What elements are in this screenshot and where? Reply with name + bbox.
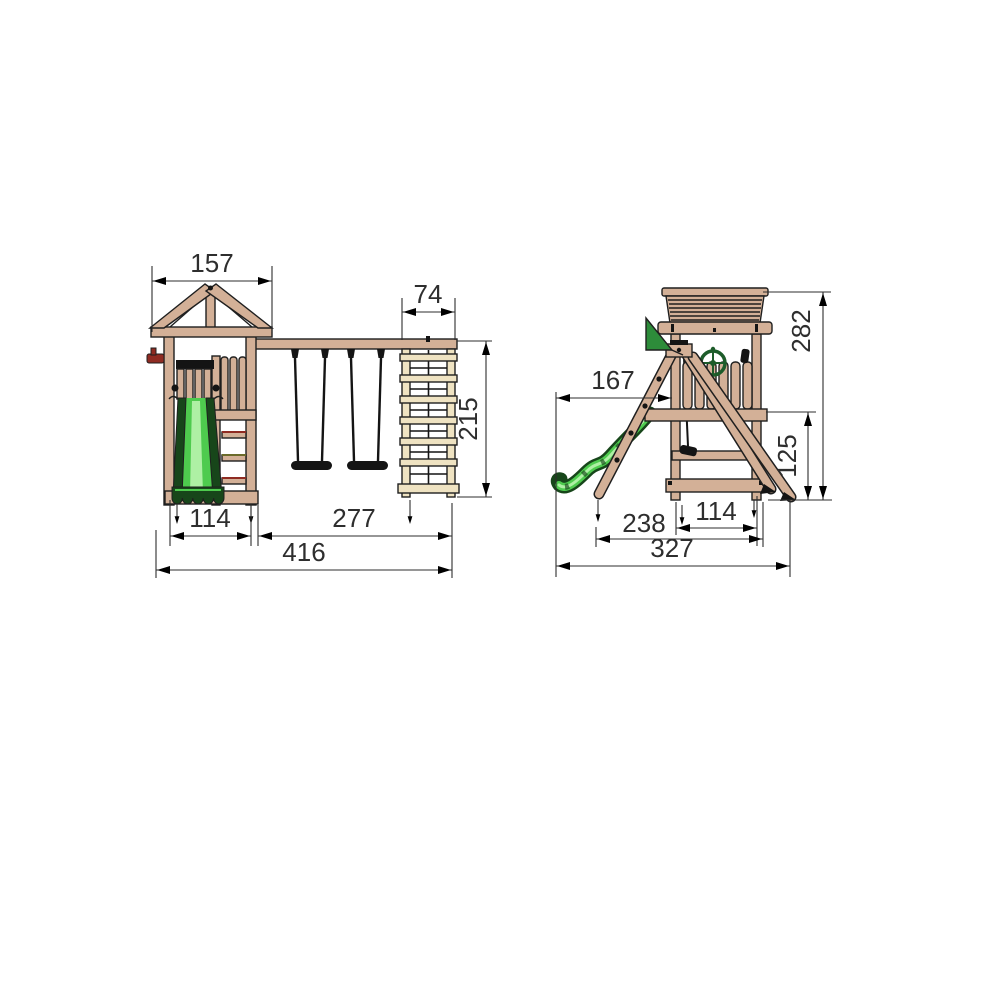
- tower-post-left: [164, 336, 174, 505]
- dim-label: 282: [786, 309, 816, 352]
- climber-base-board: [398, 484, 459, 493]
- dim-label: 167: [591, 365, 634, 395]
- swing-seat: [347, 461, 388, 470]
- dim-label: 327: [650, 533, 693, 563]
- roof-eaves-board: [151, 327, 272, 337]
- dim-label: 157: [190, 248, 233, 278]
- side-base-board: [666, 479, 766, 492]
- drawing-canvas: 157 74 215 114: [0, 0, 1000, 1000]
- roof-side: [658, 288, 772, 334]
- dim-label: 74: [414, 279, 443, 309]
- dim-height: 215: [453, 341, 492, 497]
- tap-bracket: [147, 348, 164, 363]
- playset-dimension-drawing: 157 74 215 114: [0, 0, 1000, 1000]
- dim-label: 215: [453, 397, 483, 440]
- dim-label: 114: [695, 496, 736, 526]
- dim-tower-width: 114: [170, 500, 251, 546]
- telescope-knob: [740, 349, 750, 364]
- platform-board: [645, 409, 767, 421]
- swing-2: [347, 349, 388, 470]
- front-view: 157 74 215 114: [147, 248, 492, 578]
- swing-1: [291, 349, 332, 470]
- climbing-frame: [398, 349, 459, 497]
- ladder-top-rail: [214, 410, 256, 420]
- roof: [150, 284, 272, 337]
- swing-seat: [291, 461, 332, 470]
- dim-label: 125: [772, 434, 802, 477]
- dim-label: 277: [332, 503, 375, 533]
- dim-label: 416: [282, 537, 325, 567]
- ladder-front: [222, 432, 246, 484]
- dim-label: 114: [189, 503, 230, 533]
- side-view: 282 125 167 114: [556, 288, 832, 577]
- dim-climber-width: 74: [402, 279, 455, 340]
- dim-total-width: 416: [156, 530, 452, 578]
